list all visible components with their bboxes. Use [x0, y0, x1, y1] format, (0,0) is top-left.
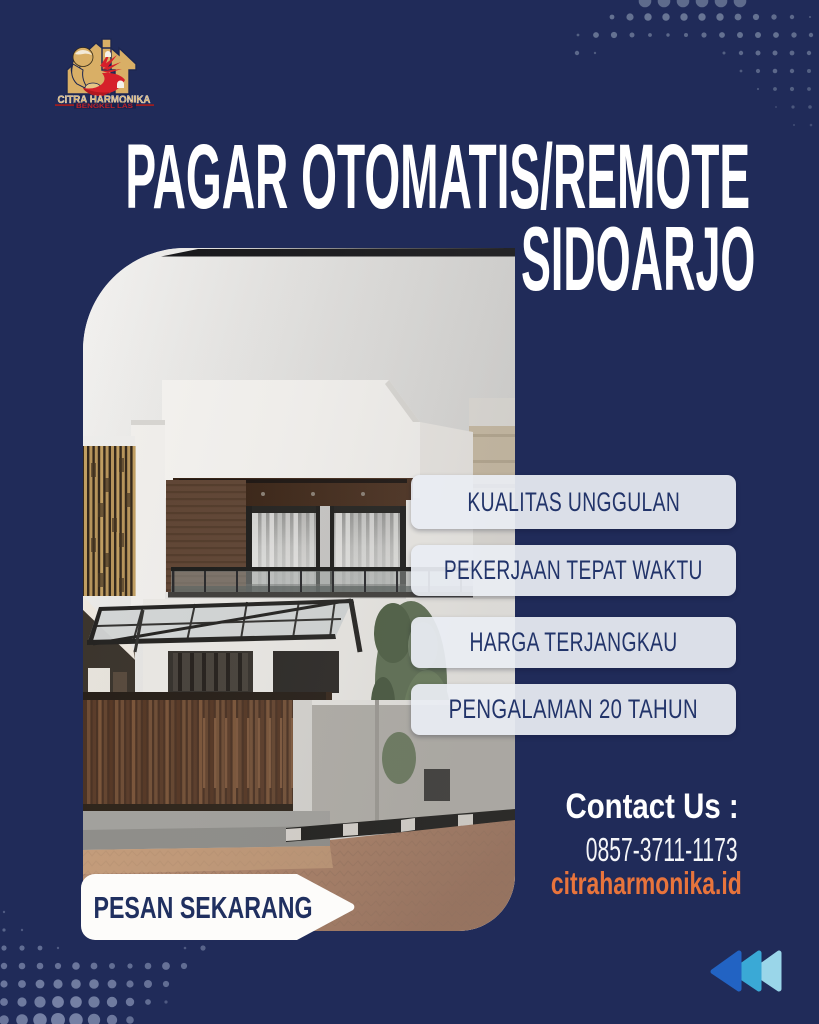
svg-text:BENGKEL LAS: BENGKEL LAS — [76, 103, 133, 110]
svg-text:PESAN SEKARANG: PESAN SEKARANG — [94, 890, 313, 925]
